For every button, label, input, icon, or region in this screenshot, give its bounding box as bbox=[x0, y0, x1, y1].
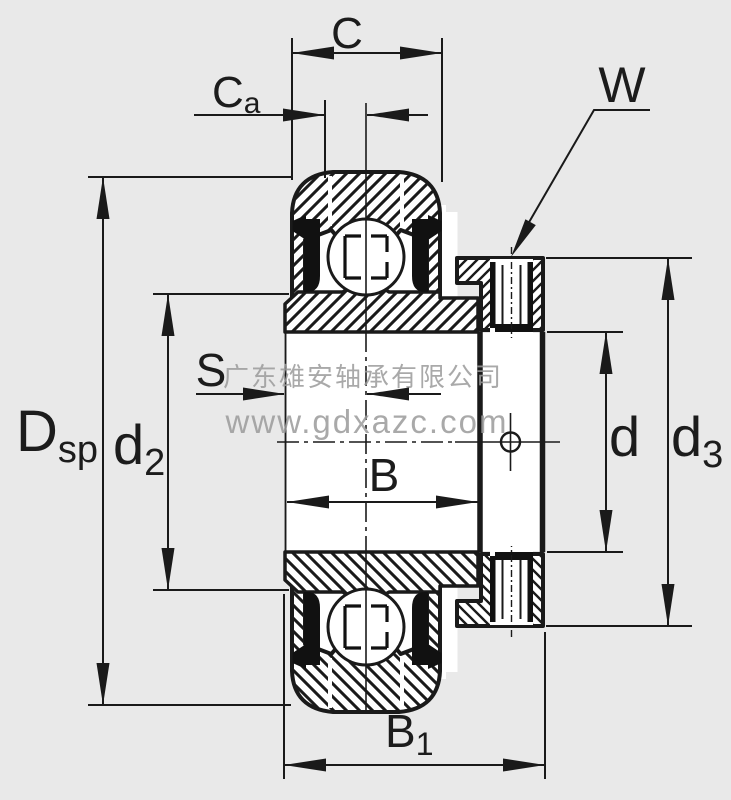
label-b: B bbox=[369, 449, 400, 501]
watermark-website: www.gdxazc.com bbox=[225, 403, 509, 440]
watermark-company: 广东雄安轴承有限公司 bbox=[223, 362, 503, 392]
label-s: S bbox=[196, 344, 227, 396]
label-c: C bbox=[331, 9, 363, 58]
label-w: W bbox=[598, 57, 646, 113]
bearing-technical-drawing: 广东雄安轴承有限公司 www.gdxazc.com C Ca W S bbox=[0, 0, 731, 800]
label-d: d bbox=[609, 405, 640, 468]
drawing-page: 广东雄安轴承有限公司 www.gdxazc.com C Ca W S bbox=[0, 0, 731, 800]
